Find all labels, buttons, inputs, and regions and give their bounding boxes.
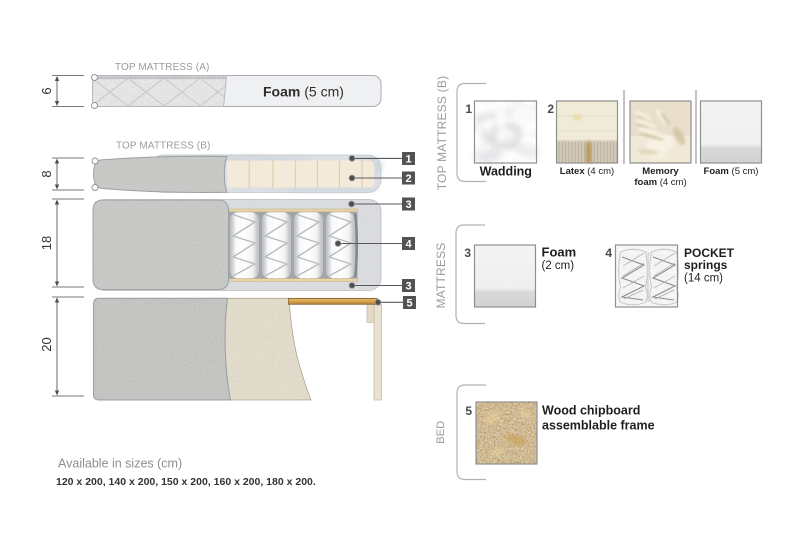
svg-text:2: 2	[547, 102, 554, 116]
svg-text:1: 1	[405, 153, 411, 165]
svg-text:assemblable frame: assemblable frame	[542, 419, 655, 433]
svg-text:TOP MATTRESS (B): TOP MATTRESS (B)	[435, 76, 449, 191]
svg-text:Wadding: Wadding	[480, 165, 532, 179]
svg-text:4: 4	[405, 238, 412, 250]
svg-text:(2 cm): (2 cm)	[542, 260, 575, 272]
svg-text:(14 cm): (14 cm)	[684, 273, 723, 285]
svg-text:8: 8	[39, 170, 54, 177]
svg-text:foam (4 cm): foam (4 cm)	[634, 177, 686, 188]
svg-text:120 x 200, 140 x 200, 150 x 20: 120 x 200, 140 x 200, 150 x 200, 160 x 2…	[56, 476, 316, 488]
svg-text:18: 18	[39, 236, 54, 250]
svg-text:3: 3	[405, 280, 411, 292]
svg-text:3: 3	[464, 246, 471, 260]
svg-text:MATTRESS: MATTRESS	[434, 242, 448, 308]
svg-text:Wood chipboard: Wood chipboard	[542, 404, 640, 418]
svg-text:Foam (5 cm): Foam (5 cm)	[704, 166, 759, 177]
svg-text:Available in sizes (cm): Available in sizes (cm)	[58, 457, 182, 471]
svg-text:Foam: Foam	[542, 245, 577, 260]
svg-text:Foam (5 cm): Foam (5 cm)	[263, 84, 344, 100]
svg-text:TOP MATTRESS (A): TOP MATTRESS (A)	[115, 62, 209, 73]
svg-text:20: 20	[39, 337, 54, 351]
svg-text:5: 5	[406, 297, 412, 309]
svg-text:1: 1	[465, 102, 472, 116]
svg-text:5: 5	[465, 404, 472, 418]
svg-text:BED: BED	[435, 421, 447, 444]
svg-text:4: 4	[605, 246, 612, 260]
svg-text:Latex (4 cm): Latex (4 cm)	[560, 166, 614, 177]
svg-text:Memory: Memory	[642, 166, 679, 177]
svg-text:springs: springs	[684, 258, 728, 272]
svg-text:3: 3	[405, 199, 411, 211]
svg-text:2: 2	[405, 173, 411, 185]
svg-text:6: 6	[39, 87, 54, 94]
svg-text:TOP MATTRESS (B): TOP MATTRESS (B)	[116, 141, 210, 152]
